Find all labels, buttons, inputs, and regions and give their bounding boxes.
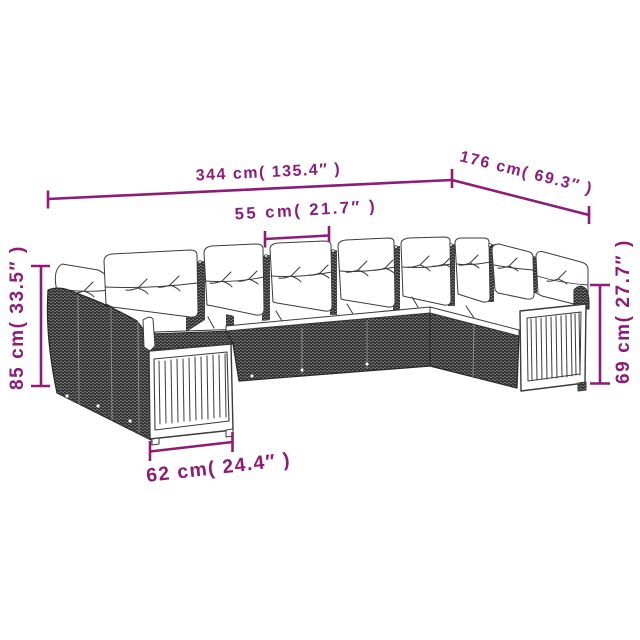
svg-text:85 cm( 33.5″ ): 85 cm( 33.5″ ): [7, 245, 28, 390]
svg-text:69 cm( 27.7″ ): 69 cm( 27.7″ ): [613, 239, 634, 384]
